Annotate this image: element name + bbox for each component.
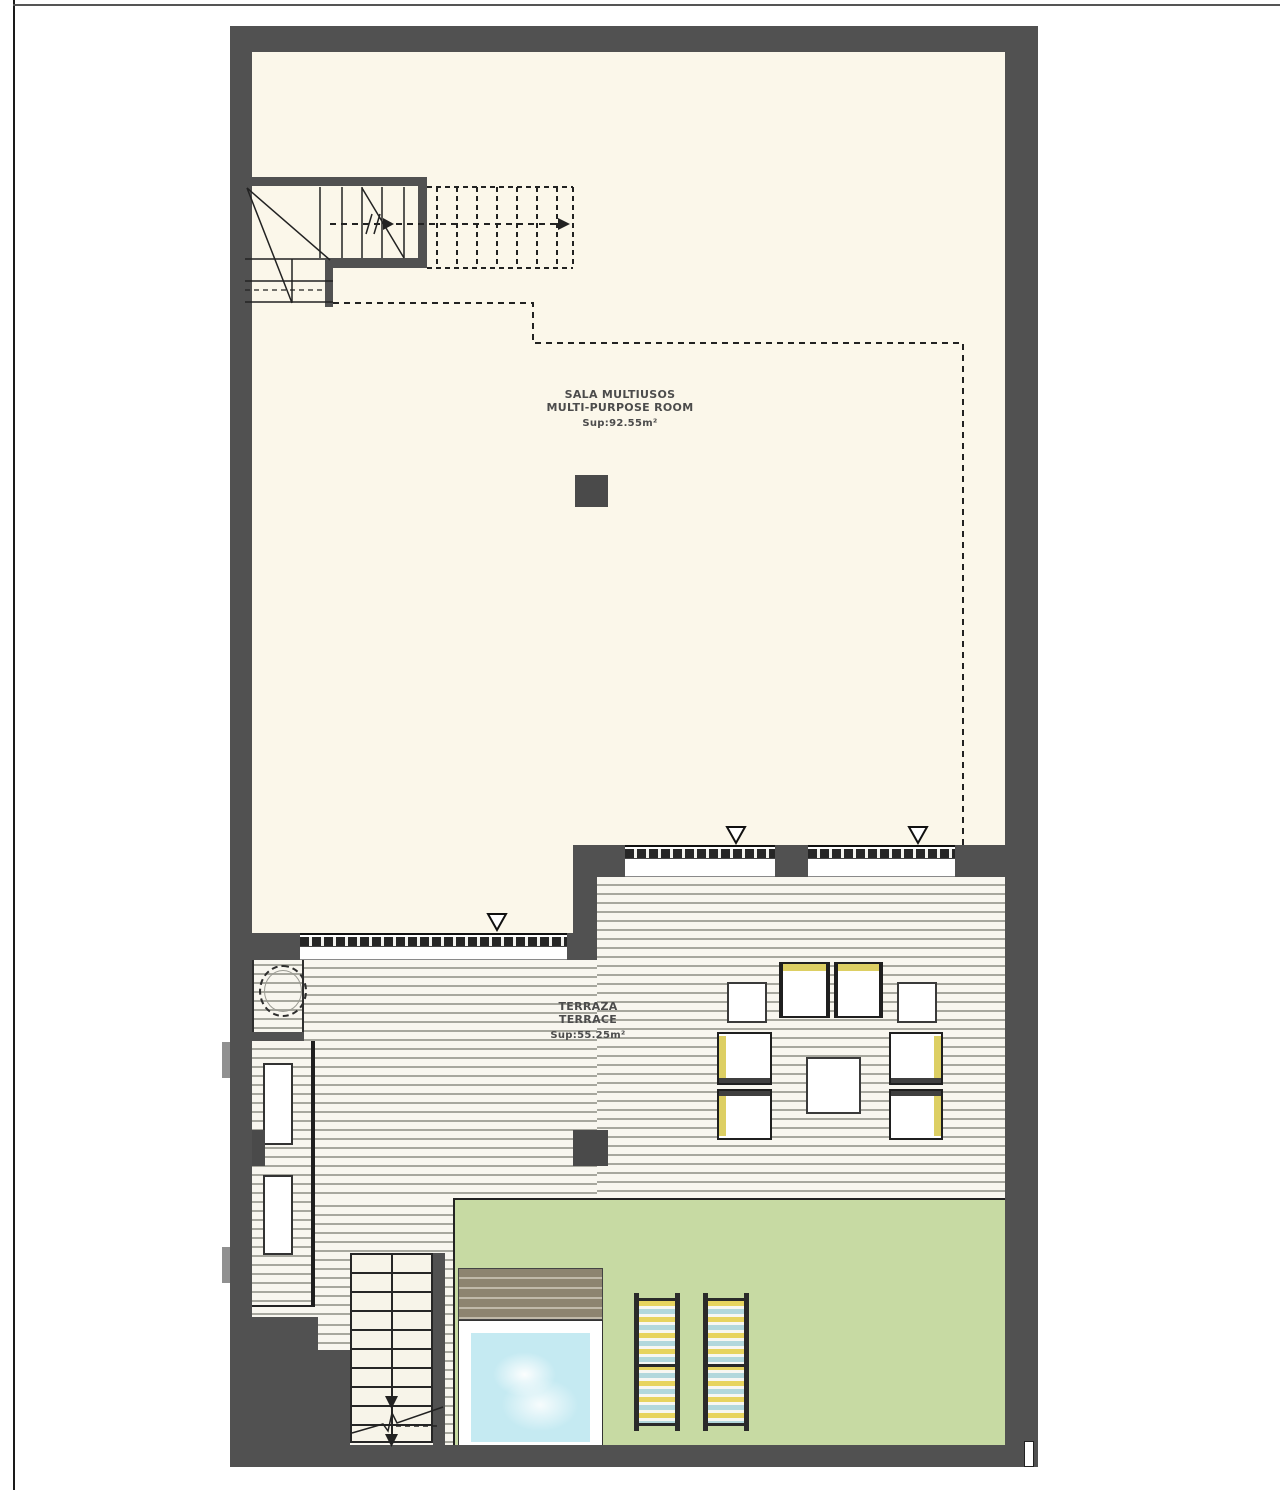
window-3 xyxy=(300,933,567,960)
outer-wall-tab-2 xyxy=(222,1247,230,1283)
structural-column-terrace xyxy=(573,1130,608,1166)
coffee-table xyxy=(806,1057,861,1114)
room-name-es: SALA MULTIUSOS xyxy=(530,388,710,401)
window-2 xyxy=(808,845,955,877)
outer-wall-tab-1 xyxy=(222,1042,230,1078)
cushion-accent xyxy=(838,964,879,971)
stair-center-rail xyxy=(391,1255,393,1441)
page-top-border xyxy=(13,4,1280,6)
pool xyxy=(458,1320,603,1447)
room-area: Sup:55.25m² xyxy=(508,1029,668,1042)
cushion-accent xyxy=(783,964,826,971)
staircase-lower xyxy=(350,1253,433,1443)
cushion-accent xyxy=(719,1036,726,1081)
wall-connector-vertical xyxy=(573,845,597,940)
lounger-rail xyxy=(634,1293,639,1431)
bottom-right-door-notch xyxy=(1024,1441,1034,1467)
chair-frame-bar xyxy=(719,1078,770,1083)
multi-purpose-room-floor xyxy=(252,52,1005,845)
multi-purpose-room-floor-lower xyxy=(252,845,573,933)
staircase-lower-right-wall xyxy=(433,1253,445,1460)
armchair-top-right xyxy=(834,962,883,1018)
armchair-left-upper xyxy=(717,1032,772,1085)
side-table-left xyxy=(727,982,767,1023)
chair-frame-bar xyxy=(719,1091,770,1096)
armchair-right-upper xyxy=(889,1032,943,1085)
upper-stair-right-wall xyxy=(418,177,427,268)
room-name-en: MULTI-PURPOSE ROOM xyxy=(530,401,710,414)
armchair-top-left xyxy=(779,962,830,1018)
utility-separator-wall xyxy=(230,1032,304,1041)
chair-frame-bar xyxy=(891,1078,941,1083)
lounger-crossbar xyxy=(704,1364,748,1367)
cushion-accent xyxy=(934,1036,941,1081)
floor-plan-page: SALA MULTIUSOS MULTI-PURPOSE ROOM Sup:92… xyxy=(0,0,1280,1490)
lounger-rail xyxy=(703,1293,708,1431)
room-name-es: TERRAZA xyxy=(508,1000,668,1013)
cushion-accent xyxy=(719,1093,726,1136)
room-name-en: TERRACE xyxy=(508,1013,668,1026)
outer-wall-right xyxy=(1005,26,1038,1467)
lounger-crossbar xyxy=(635,1364,679,1367)
window-frame xyxy=(808,849,955,859)
window-1 xyxy=(625,845,775,877)
wall-pier-lower-left xyxy=(240,933,300,960)
cushion-accent xyxy=(934,1093,941,1136)
round-fixture-inner xyxy=(264,970,302,1012)
outer-wall-top xyxy=(230,26,1038,52)
armchair-left-lower xyxy=(717,1089,772,1140)
upper-stair-corner-wall xyxy=(325,258,333,307)
window-frame xyxy=(300,937,567,947)
pool-deck-band xyxy=(458,1268,603,1320)
wall-pier-mid xyxy=(775,845,808,877)
room-label-multi-purpose: SALA MULTIUSOS MULTI-PURPOSE ROOM Sup:92… xyxy=(530,388,710,430)
utility-compartment xyxy=(252,955,304,1035)
bottom-left-solid-block xyxy=(230,1317,318,1467)
left-wall-pilaster xyxy=(252,1130,265,1166)
lounger-rail xyxy=(744,1293,749,1431)
planter-1 xyxy=(263,1063,293,1145)
stair-side-solid-block xyxy=(318,1350,350,1467)
pool-water xyxy=(471,1333,590,1442)
outer-wall-bottom xyxy=(318,1445,1005,1467)
planter-2 xyxy=(263,1175,293,1255)
round-fixture-icon xyxy=(259,965,307,1017)
upper-stair-top-wall xyxy=(245,177,427,186)
armchair-right-lower xyxy=(889,1089,943,1140)
room-area: Sup:92.55m² xyxy=(530,417,710,430)
page-left-border xyxy=(13,0,15,1490)
structural-column-room xyxy=(575,475,608,507)
lounger-rail xyxy=(675,1293,680,1431)
upper-stair-bottom-wall xyxy=(325,258,427,268)
side-table-right xyxy=(897,982,937,1023)
outer-wall-left xyxy=(230,26,252,1317)
window-frame xyxy=(625,849,775,859)
wall-pier-right xyxy=(955,845,1005,877)
wall-pier-lower-right xyxy=(567,933,597,960)
sun-lounger-2 xyxy=(704,1298,748,1426)
chair-frame-bar xyxy=(891,1091,941,1096)
room-label-terrace: TERRAZA TERRACE Sup:55.25m² xyxy=(508,1000,668,1042)
sun-lounger-1 xyxy=(635,1298,679,1426)
